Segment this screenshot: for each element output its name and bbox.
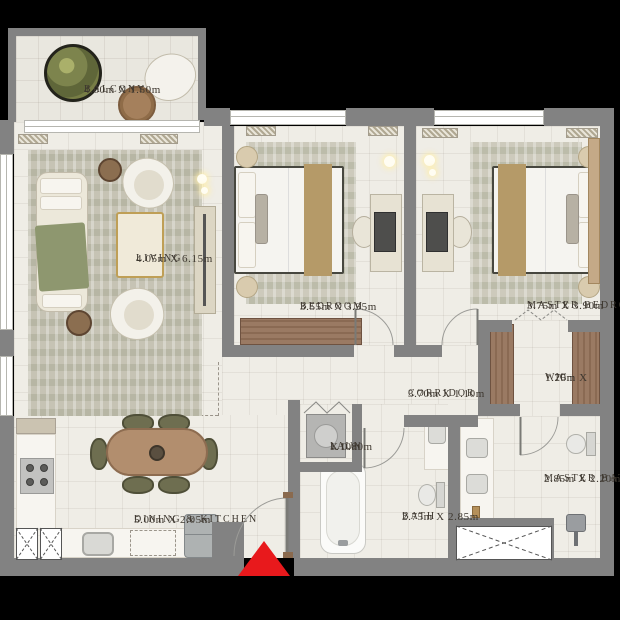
wall <box>0 120 14 154</box>
master-bath-door <box>520 417 558 455</box>
living-window <box>0 154 13 330</box>
vent-icon <box>18 134 48 144</box>
bed-pillow <box>238 222 256 268</box>
burner-icon <box>40 478 48 486</box>
shaft-x-box <box>456 526 552 560</box>
tub-faucet-icon <box>338 540 348 546</box>
wall <box>222 126 234 345</box>
wall <box>600 120 614 558</box>
laptop-icon <box>426 212 448 252</box>
master-bath-dims: 2.85m X 2.20m <box>544 472 620 486</box>
wall <box>478 320 490 416</box>
wall <box>404 126 416 345</box>
duvet-crease <box>545 168 546 272</box>
master-wardrobe <box>588 138 600 284</box>
laundry-bifold-door-icon <box>303 401 351 414</box>
wall <box>0 416 14 576</box>
balcony-slider-window <box>24 120 200 133</box>
sofa-pillow <box>42 294 82 308</box>
appliance-outline <box>130 530 176 556</box>
burner-icon <box>26 464 34 472</box>
master-bedroom-door <box>442 309 478 345</box>
bedroom-door <box>355 309 393 345</box>
wall <box>8 28 16 122</box>
stove-icon <box>20 458 54 494</box>
duvet-crease <box>288 168 289 272</box>
dining-chair-icon <box>158 476 190 494</box>
centerpiece-bowl-icon <box>149 445 165 461</box>
bathtub-basin <box>326 470 360 546</box>
vent-icon <box>246 126 276 136</box>
bed-accent-pillow <box>255 194 268 244</box>
dining-kitchen-dims: 5.00m X 2.05m <box>134 513 211 527</box>
wall <box>352 404 362 464</box>
dining-chair-icon <box>122 476 154 494</box>
bath-dims: 2.75m X 2.85m <box>402 510 479 524</box>
wall-lamp-icon <box>429 169 436 176</box>
coffee-table-icon <box>116 212 164 278</box>
shaft-x-box <box>16 528 38 560</box>
bed-throw <box>304 164 332 276</box>
side-table-icon <box>66 310 92 336</box>
living-dims: 4.05m X 6.15m <box>136 252 213 266</box>
vent-icon <box>422 128 458 138</box>
side-table-icon <box>98 158 122 182</box>
bedroom-dims: 3.55m X 3.95m <box>300 300 377 314</box>
vent-icon <box>140 134 178 144</box>
corridor-dims: 3.70m X 1.10m <box>408 387 485 401</box>
kitchen-sink-icon <box>82 532 114 556</box>
sofa-throw <box>35 222 89 291</box>
sink-icon <box>466 438 488 458</box>
wall <box>288 400 300 558</box>
bedroom-wardrobe <box>240 318 362 345</box>
shaft-x-box <box>40 528 62 560</box>
bed-throw <box>498 164 526 276</box>
wall-lamp-icon <box>384 156 395 167</box>
vent-icon <box>566 128 598 138</box>
wall <box>478 404 520 416</box>
toilet-icon <box>566 434 586 454</box>
burner-icon <box>26 478 34 486</box>
wall-lamp-icon <box>201 187 208 194</box>
armchair-seat <box>134 170 164 200</box>
kitchen-window <box>0 356 13 416</box>
wall <box>198 28 206 120</box>
wall <box>0 558 244 576</box>
door-post <box>283 492 293 498</box>
kitchen-cabinet <box>16 418 56 434</box>
wic-wardrobe-left <box>490 324 514 410</box>
bed-accent-pillow <box>566 194 579 244</box>
wall <box>560 404 614 416</box>
wall <box>204 108 230 126</box>
wic-dims-line2: 1.75m <box>545 371 576 385</box>
wall <box>300 462 362 472</box>
sink-icon <box>428 424 446 444</box>
laptop-icon <box>374 212 396 252</box>
wall <box>568 320 614 332</box>
master-bedroom-dims: 3.75m X 3.90m <box>527 299 604 313</box>
toilet-tank <box>586 432 596 456</box>
vent-icon <box>368 126 398 136</box>
master-bedroom-window <box>434 110 544 125</box>
balcony-dims: 4.00m X 1.50m <box>84 83 161 97</box>
shower-icon <box>566 514 586 532</box>
bedroom-window <box>230 110 346 125</box>
wall <box>222 345 354 357</box>
toilet-tank <box>436 482 445 508</box>
living-corridor-boundary-dash <box>218 362 219 416</box>
shower-stem <box>574 532 578 546</box>
wall <box>0 330 14 356</box>
wall-lamp-icon <box>197 174 207 184</box>
armchair-seat <box>124 300 154 330</box>
wall <box>346 108 434 126</box>
apartment-floor-plan: BALCONY 4.00m X 1.50m LIVING 4.05m X 6.1… <box>0 0 620 620</box>
bed-pillow <box>238 172 256 218</box>
wic-wardrobe-right <box>572 324 600 406</box>
laundry-dims-line2: X 0.80m <box>330 440 373 454</box>
burner-icon <box>40 464 48 472</box>
sofa-pillow <box>40 196 82 210</box>
toilet-icon <box>418 484 436 506</box>
sink-icon <box>466 474 488 494</box>
wall-lamp-icon <box>424 155 435 166</box>
wall <box>294 558 614 576</box>
nightstand-icon <box>236 146 258 168</box>
wall <box>394 345 442 357</box>
wall <box>8 28 206 36</box>
entrance-marker <box>238 541 290 576</box>
wall <box>404 415 478 427</box>
wall <box>478 320 512 332</box>
nightstand-icon <box>236 276 258 298</box>
sofa-pillow <box>40 178 82 194</box>
